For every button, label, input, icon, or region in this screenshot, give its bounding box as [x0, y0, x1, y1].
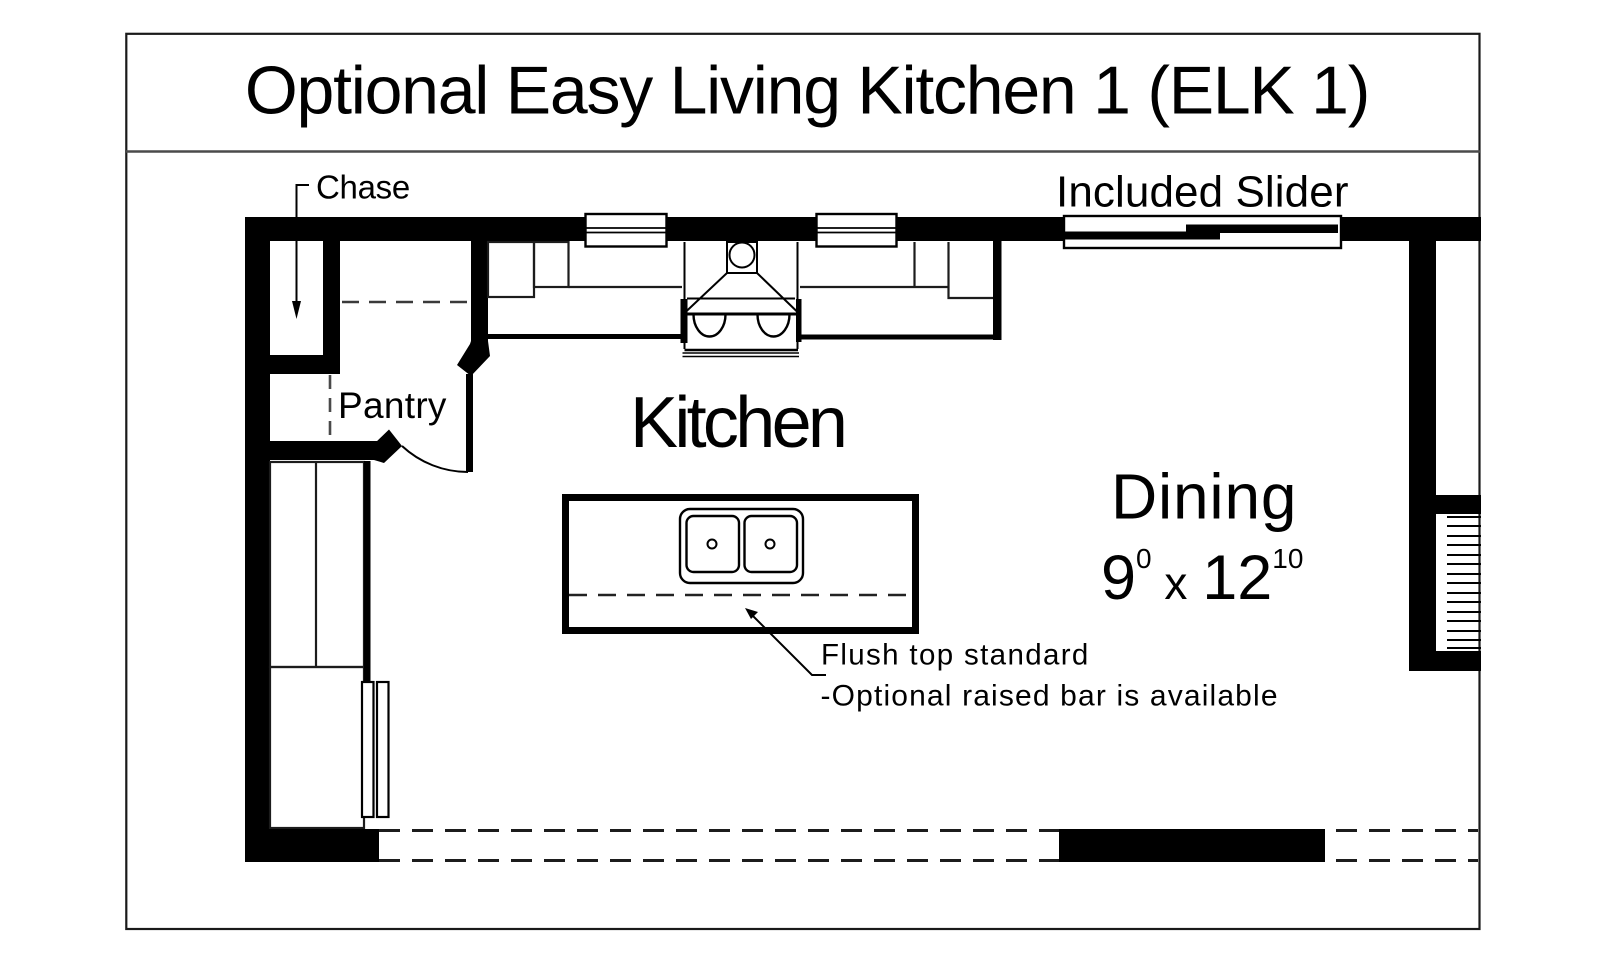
svg-text:Pantry: Pantry [338, 385, 447, 426]
svg-text:Optional Easy Living Kitchen 1: Optional Easy Living Kitchen 1 (ELK 1) [245, 53, 1369, 129]
svg-text:-Optional raised bar is availa: -Optional raised bar is available [821, 680, 1279, 713]
svg-text:Kitchen: Kitchen [630, 383, 844, 463]
svg-text:Dining: Dining [1111, 461, 1297, 533]
svg-text:Chase: Chase [316, 169, 410, 206]
svg-text:Included Slider: Included Slider [1056, 168, 1349, 217]
svg-text:Flush top standard: Flush top standard [821, 639, 1090, 672]
